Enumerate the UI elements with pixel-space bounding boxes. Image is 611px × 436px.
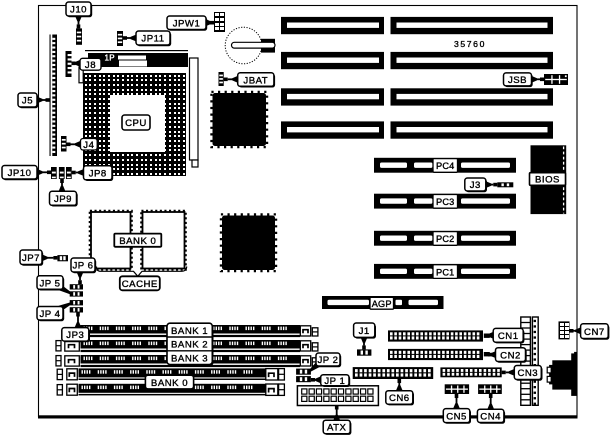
svg-text:JP8: JP8	[89, 169, 107, 180]
svg-text:JSB: JSB	[508, 75, 527, 86]
svg-text:1P: 1P	[105, 53, 115, 62]
svg-text:PC2: PC2	[436, 234, 454, 244]
svg-text:CN7: CN7	[584, 327, 605, 338]
svg-text:JP3: JP3	[66, 330, 84, 341]
svg-text:CN3: CN3	[517, 368, 538, 379]
svg-text:BANK 1: BANK 1	[171, 326, 208, 337]
svg-text:J5: J5	[22, 96, 33, 107]
svg-text:CN5: CN5	[446, 411, 467, 422]
svg-text:CN4: CN4	[480, 412, 501, 423]
svg-text:JP10: JP10	[8, 168, 32, 179]
svg-text:PC1: PC1	[436, 267, 454, 277]
svg-text:BIOS: BIOS	[535, 175, 560, 186]
svg-text:BANK 3: BANK 3	[171, 353, 208, 364]
svg-text:CN1: CN1	[498, 331, 519, 342]
svg-text:J10: J10	[70, 5, 87, 16]
svg-text:AGP: AGP	[372, 299, 392, 309]
svg-text:CPU: CPU	[125, 118, 147, 129]
svg-text:JP 6: JP 6	[72, 261, 93, 272]
svg-text:JP11: JP11	[141, 34, 164, 45]
svg-text:BANK 0: BANK 0	[151, 378, 188, 389]
svg-text:J1: J1	[359, 326, 370, 337]
svg-text:JP 1: JP 1	[324, 376, 345, 387]
svg-text:J4: J4	[83, 140, 94, 151]
svg-text:JBAT: JBAT	[243, 75, 268, 86]
svg-text:JP 2: JP 2	[317, 355, 338, 366]
svg-text:BANK 0: BANK 0	[119, 236, 156, 247]
svg-text:PC4: PC4	[436, 161, 454, 171]
svg-text:PC3: PC3	[436, 197, 454, 207]
svg-text:CACHE: CACHE	[122, 279, 158, 290]
svg-text:J3: J3	[470, 180, 481, 191]
svg-text:ATX: ATX	[327, 423, 347, 434]
svg-text:JPW1: JPW1	[173, 18, 201, 29]
svg-text:J8: J8	[85, 60, 96, 71]
svg-text:BANK 2: BANK 2	[171, 340, 208, 351]
svg-text:JP 5: JP 5	[39, 278, 60, 289]
svg-text:JP7: JP7	[22, 253, 40, 264]
svg-text:JP9: JP9	[54, 194, 72, 205]
svg-text:35760: 35760	[454, 39, 486, 49]
svg-text:JP 4: JP 4	[39, 309, 60, 320]
svg-text:CN6: CN6	[389, 393, 410, 404]
svg-text:CN2: CN2	[500, 350, 521, 361]
